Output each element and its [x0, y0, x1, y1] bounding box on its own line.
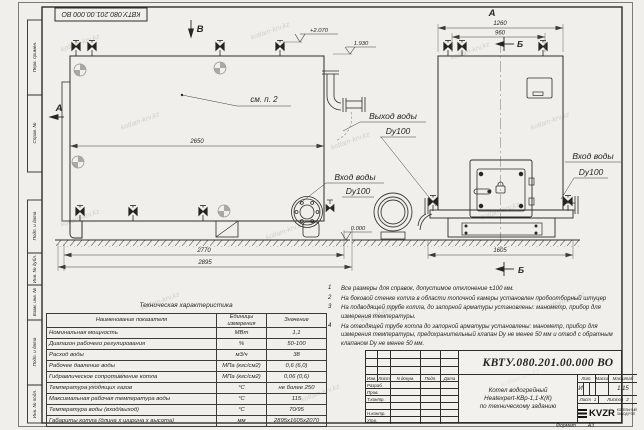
tech-cell: 0,6 (6,0)	[267, 361, 327, 372]
drain-valve-icon	[326, 200, 334, 212]
tech-cell: 38	[267, 350, 327, 361]
blower-fan	[374, 193, 412, 239]
tech-cell: МПа (кгс/см2)	[217, 372, 267, 383]
table-row: Диапазон рабочего регулирования % 50-100	[47, 339, 327, 350]
sig-row-label: Разраб.	[366, 382, 391, 389]
inlet-left-label: Вход воды	[334, 172, 376, 182]
view-label-a-side: А	[55, 103, 63, 114]
table-row: Расход воды м3/ч 38	[47, 350, 327, 361]
dim-2650: 2650	[189, 139, 204, 145]
tech-cell: Гидравлическое сопротивление котла	[47, 372, 217, 383]
dim-960: 960	[495, 31, 506, 37]
note-text: На боковой стенке котла в области топочн…	[341, 295, 620, 304]
tech-table: Наименование показателя Единицы измерени…	[46, 313, 327, 427]
tech-cell: Расход воды	[47, 350, 217, 361]
dim-1260: 1260	[493, 21, 507, 27]
boiler-front-view	[418, 42, 578, 248]
product-name-line: Котел водогрейный	[489, 387, 548, 394]
view-label-a-top: А	[488, 8, 496, 19]
valve-icon	[429, 196, 437, 212]
dim-2895: 2895	[197, 260, 212, 266]
tech-cell: Габариты котла (длина х ширина х высота)	[47, 416, 217, 427]
rev-header: N докум.	[391, 375, 421, 382]
tech-characteristics: Техническая характеристика Наименование …	[46, 302, 326, 427]
top-stamp-text: КВТУ.080.201.00.000 ВО	[61, 10, 141, 17]
see-note-ref: см. п. 2	[250, 95, 278, 104]
tech-cell: 1,1	[267, 328, 327, 339]
tech-header: Значение	[267, 314, 327, 328]
inlet-right-dn-label: Dy100	[579, 167, 604, 177]
kvzr-logo-icon	[578, 409, 587, 418]
drawing-sheet: kotlam-krv.kz kotlam-krv.kz kotlam-krv.k…	[0, 0, 644, 430]
table-row: Температура уходящих газов °С не более 2…	[47, 383, 327, 394]
kvzr-logo-text: KVZR	[589, 408, 615, 419]
format-label: Формат	[556, 423, 576, 429]
note-number: 3	[328, 304, 341, 321]
table-row: Максимальная рабочая температура воды °С…	[47, 394, 327, 405]
sig-row-label: Пров.	[366, 389, 391, 396]
title-block-right-column: Лит. Масса Масштаб И 1:15 Лист	[578, 375, 637, 422]
valve-icon	[129, 206, 137, 222]
note-number: 2	[328, 295, 341, 304]
tech-cell: Температура воды (вход/выход)	[47, 405, 217, 416]
valve-icon	[276, 41, 284, 57]
sig-row-label	[366, 403, 391, 410]
table-row: Гидравлическое сопротивление котла МПа (…	[47, 372, 327, 383]
top-stamp: КВТУ.080.201.00.000 ВО	[55, 8, 147, 21]
sig-row-label: Н.контр.	[366, 410, 391, 417]
tech-cell: Температура уходящих газов	[47, 383, 217, 394]
sheet-value: 1	[594, 397, 596, 402]
dim-2770: 2770	[196, 248, 211, 254]
lifting-lug-icon	[72, 156, 84, 168]
lifting-lug-icon	[218, 205, 230, 217]
furnace-door	[470, 160, 534, 217]
valve-icon	[444, 41, 452, 57]
outlet-label: Выход воды	[369, 111, 418, 121]
product-name-line: по техническому заданию	[480, 403, 556, 410]
title-block-revisions: Изм. Лист N докум. Подп. Дата Разраб. Пр…	[366, 351, 459, 422]
note-text: Все размеры для справок, допустимое откл…	[341, 285, 620, 294]
table-row: Габариты котла (длина х ширина х высота)…	[47, 416, 327, 427]
sheets-value: 2	[626, 397, 628, 402]
note-text: На подводящей трубе котла, до запорной а…	[341, 304, 620, 321]
tech-cell: мм	[217, 416, 267, 427]
outlet-dn-label: Dy100	[386, 126, 411, 136]
margin-field: Инв. № подл.	[32, 390, 37, 419]
note-number: 4	[328, 323, 341, 349]
tech-cell: Номинальная мощность	[47, 328, 217, 339]
dimensions	[58, 24, 573, 271]
tech-cell: °С	[217, 405, 267, 416]
product-name-line: Heatexpert-КВр-1,1-К(К)	[484, 395, 552, 402]
table-row: Номинальная мощность МВт 1,1	[47, 328, 327, 339]
margin-field: Инв. № дубл.	[32, 255, 37, 283]
lifting-lug-icon	[214, 62, 226, 74]
section-label-b-bottom: Б	[518, 265, 524, 275]
valve-icon	[216, 41, 224, 57]
tech-cell: 70/95	[267, 405, 327, 416]
format-note: ФорматА3	[556, 423, 606, 429]
lifting-lug-icon	[74, 64, 86, 76]
scale-value: 1:15	[609, 383, 637, 396]
title-block: Изм. Лист N докум. Подп. Дата Разраб. Пр…	[365, 350, 622, 423]
note-item: 1 Все размеры для справок, допустимое от…	[328, 285, 620, 294]
note-number: 1	[328, 285, 341, 294]
dim-1605: 1605	[493, 248, 507, 254]
valve-icon	[76, 206, 84, 222]
inlet-left-dn-label: Dy100	[346, 186, 371, 196]
margin-field: Справ. №	[32, 123, 37, 144]
level-marks	[283, 34, 376, 240]
note-item: 2 На боковой стенке котла в области топо…	[328, 295, 620, 304]
outlet-pipe	[322, 71, 365, 140]
tech-header: Единицы измерения	[217, 314, 267, 328]
margin-field: Перв. примен.	[32, 42, 37, 73]
ground-line	[55, 240, 580, 247]
scale-header: Масштаб	[609, 375, 637, 383]
burner-flange	[292, 197, 323, 228]
rev-header: Дата	[441, 375, 458, 382]
tech-cell: %	[217, 339, 267, 350]
tech-cell: °С	[217, 383, 267, 394]
mass-value	[596, 383, 609, 396]
section-label-b-top: Б	[517, 39, 523, 49]
margin-field: Подп. и дата	[32, 211, 37, 240]
notes-block: 1 Все размеры для справок, допустимое от…	[328, 285, 620, 350]
table-row: Рабочее давление воды МПа (кгс/см2) 0,6 …	[47, 361, 327, 372]
tech-cell: 0,06 (0,6)	[267, 372, 327, 383]
format-value: А3	[588, 423, 594, 429]
rev-header: Подп.	[421, 375, 441, 382]
boiler-side-view	[62, 56, 365, 238]
tech-header: Наименование показателя	[47, 314, 217, 328]
control-panel	[527, 78, 552, 98]
valve-icon	[539, 41, 547, 57]
valve-icon	[72, 41, 80, 57]
margin-field: Взам. инв. №	[32, 288, 37, 316]
tech-cell: Диапазон рабочего регулирования	[47, 339, 217, 350]
tech-cell: Максимальная рабочая температура воды	[47, 394, 217, 405]
org-name-line: ЗАВОД РЭП	[617, 413, 637, 417]
tech-cell: Рабочее давление воды	[47, 361, 217, 372]
inlet-right-label: Вход воды	[572, 151, 614, 161]
tech-cell: 2895х1605х2070	[267, 416, 327, 427]
product-name: Котел водогрейный Heatexpert-КВр-1,1-К(К…	[459, 375, 578, 422]
valve-icon	[88, 41, 96, 57]
lit-header: Лит.	[578, 375, 596, 383]
tech-cell: МПа (кгс/см2)	[217, 361, 267, 372]
sheets-label: Листов	[607, 397, 623, 402]
tech-cell: не более 250	[267, 383, 327, 394]
elev-pipe: 1.930	[354, 41, 369, 47]
drawing-designation: КВТУ.080.201.00.000 ВО	[459, 351, 637, 375]
sig-row-label: Т.контр.	[366, 396, 391, 403]
note-item: 4 На отводящей трубе котла до запорной а…	[328, 323, 620, 349]
note-text: На отводящей трубе котла до запорной арм…	[341, 323, 620, 349]
tech-cell: 115	[267, 394, 327, 405]
tech-cell: м3/ч	[217, 350, 267, 361]
section-marks	[50, 20, 514, 276]
sig-row-label: Утв.	[366, 417, 391, 424]
mass-header: Масса	[596, 375, 609, 383]
elev-top: +2.070	[310, 28, 329, 34]
company-logo: KVZR КОТЕЛЬНЫЙ ЗАВОД РЭП	[578, 404, 637, 422]
rev-header: Изм.	[366, 375, 378, 382]
valve-icon	[199, 206, 207, 222]
sheet-label: Лист	[580, 397, 591, 402]
tech-cell: МВт	[217, 328, 267, 339]
table-row: Температура воды (вход/выход) °С 70/95	[47, 405, 327, 416]
margin-field: Подп. и дата	[32, 337, 37, 366]
valve-icon	[458, 41, 466, 57]
note-item: 3 На подводящей трубе котла, до запорной…	[328, 304, 620, 321]
tech-cell: 50-100	[267, 339, 327, 350]
rev-header: Лист	[378, 375, 391, 382]
section-label-v: В	[197, 24, 204, 35]
elev-zero: 0.000	[351, 226, 366, 232]
tech-table-title: Техническая характеристика	[46, 302, 326, 313]
tech-cell: °С	[217, 394, 267, 405]
title-block-main: КВТУ.080.201.00.000 ВО Котел водогрейный…	[459, 351, 637, 422]
